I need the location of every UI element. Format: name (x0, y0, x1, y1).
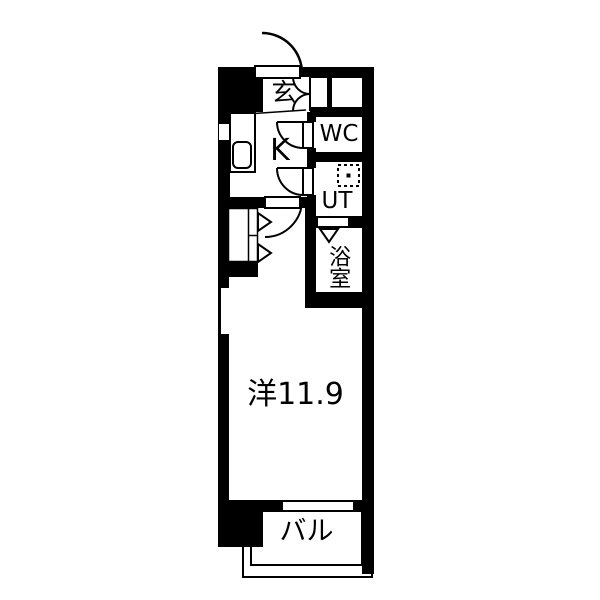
main-room-label: 洋11.9 (229, 379, 362, 411)
room-main-upper (258, 208, 305, 308)
wc-door-gap (307, 122, 316, 148)
closet (228, 208, 258, 262)
balcony-label: バル (250, 518, 363, 546)
bath-door-bar (316, 216, 350, 228)
utility-label: UT (316, 189, 358, 213)
wc-label: WC (316, 122, 362, 146)
kitchen-label: K (255, 135, 305, 167)
sliding-window (283, 502, 353, 510)
bathroom-label: 浴室 (326, 240, 349, 294)
entrance-label: 玄 (263, 80, 305, 106)
kitchen-window (219, 124, 230, 140)
floorplan-canvas: 玄 K WC UT 浴室 洋11.9 バル (0, 0, 600, 600)
shoe-cabinet-box (310, 78, 327, 107)
right-wall-extension (362, 512, 374, 574)
meter-box (332, 78, 362, 107)
utility-door-gap (307, 168, 316, 195)
entrance-door-leaf (254, 65, 301, 79)
room-main-left (229, 277, 258, 308)
